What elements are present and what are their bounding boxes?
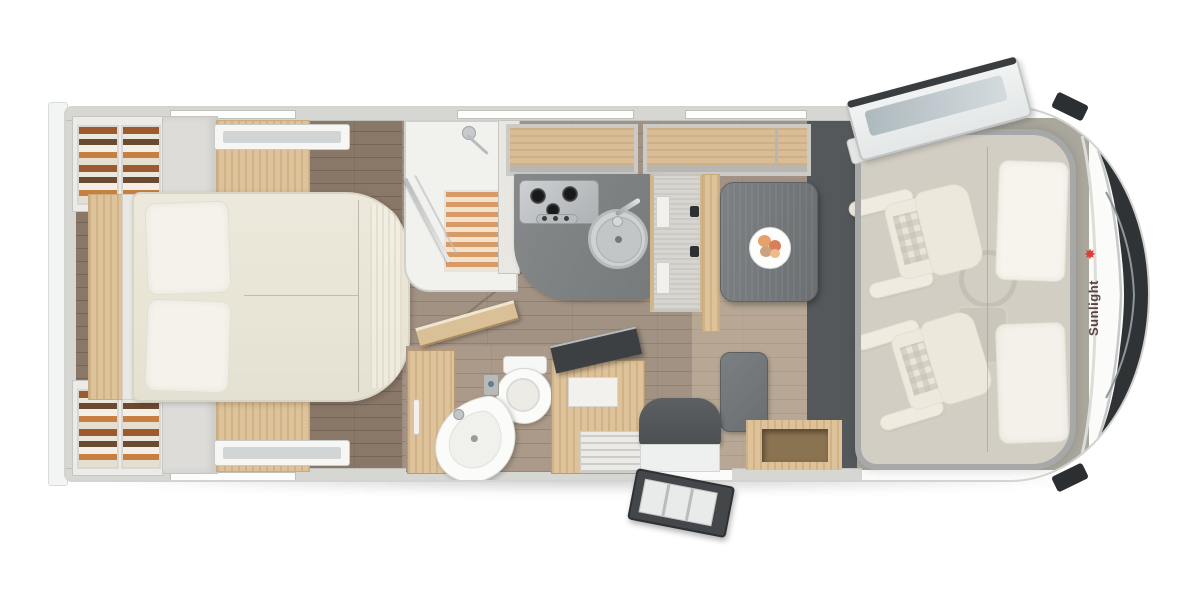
hob-knob	[564, 216, 569, 221]
dinette-table	[720, 182, 818, 302]
cabinet-inset	[568, 377, 618, 407]
vehicle-body	[64, 106, 1150, 482]
fridge-handle	[656, 196, 670, 228]
kitchen-partition	[702, 174, 720, 332]
door-steps	[639, 479, 718, 526]
motorhome-floorplan: ✸ Sunlight	[0, 0, 1200, 600]
bed-seam-horizontal	[244, 295, 358, 296]
fridge-handle	[656, 262, 670, 294]
headboard-shelf	[88, 194, 124, 400]
bottom-wall-right	[732, 468, 862, 482]
brand-logo: Sunlight	[1086, 253, 1102, 363]
roof-vent-bottom	[214, 440, 350, 466]
bench-open-shelf	[762, 429, 828, 462]
locker-edge	[647, 165, 807, 172]
roof-vent-glass	[223, 447, 341, 459]
entry-storage-cabinet	[551, 360, 645, 474]
dinette-overhead-locker	[643, 124, 811, 176]
bed-foot-runner	[370, 204, 402, 388]
toilet-flush-panel	[483, 374, 499, 396]
burner	[562, 186, 578, 202]
step-tread	[661, 484, 670, 516]
burner	[530, 188, 546, 204]
food-plate	[749, 227, 791, 269]
fridge-hinge	[690, 246, 699, 257]
hob-knob-strip	[536, 214, 578, 224]
window-top-2	[457, 110, 634, 119]
bench-wood-base	[746, 420, 842, 470]
island-bed	[132, 192, 410, 402]
clothes-shelf	[77, 389, 119, 469]
bed-seam-vertical	[358, 200, 359, 392]
flush-button	[488, 381, 494, 387]
roof-vent-glass	[223, 131, 341, 143]
kitchen-overhead-locker	[506, 124, 638, 176]
roof-vent-top	[214, 124, 350, 150]
toilet-seat	[506, 378, 540, 412]
locker-edge	[510, 165, 634, 172]
entry-step-floor	[640, 444, 720, 472]
bed-overlay-seam	[987, 147, 988, 452]
faucet-base	[612, 216, 623, 227]
hob-knob	[553, 216, 558, 221]
fridge-hinge	[690, 206, 699, 217]
cabinet-tambour	[580, 431, 644, 473]
cab-bed-pillow	[995, 322, 1069, 444]
pillow	[144, 201, 231, 296]
step-tread	[685, 489, 694, 521]
cab-bed-pillow	[995, 160, 1069, 282]
window-top-3	[685, 110, 807, 119]
fridge-unit	[650, 174, 704, 312]
hob-knob	[542, 216, 547, 221]
gas-hob	[519, 180, 599, 224]
pillow	[144, 299, 231, 394]
entry-seat-backrest	[639, 398, 721, 446]
sink-drain	[615, 236, 622, 243]
drop-down-bed-overlay	[855, 129, 1076, 470]
food	[770, 249, 780, 258]
clothes-shelf	[77, 125, 119, 205]
cabinet-handle	[413, 399, 420, 435]
